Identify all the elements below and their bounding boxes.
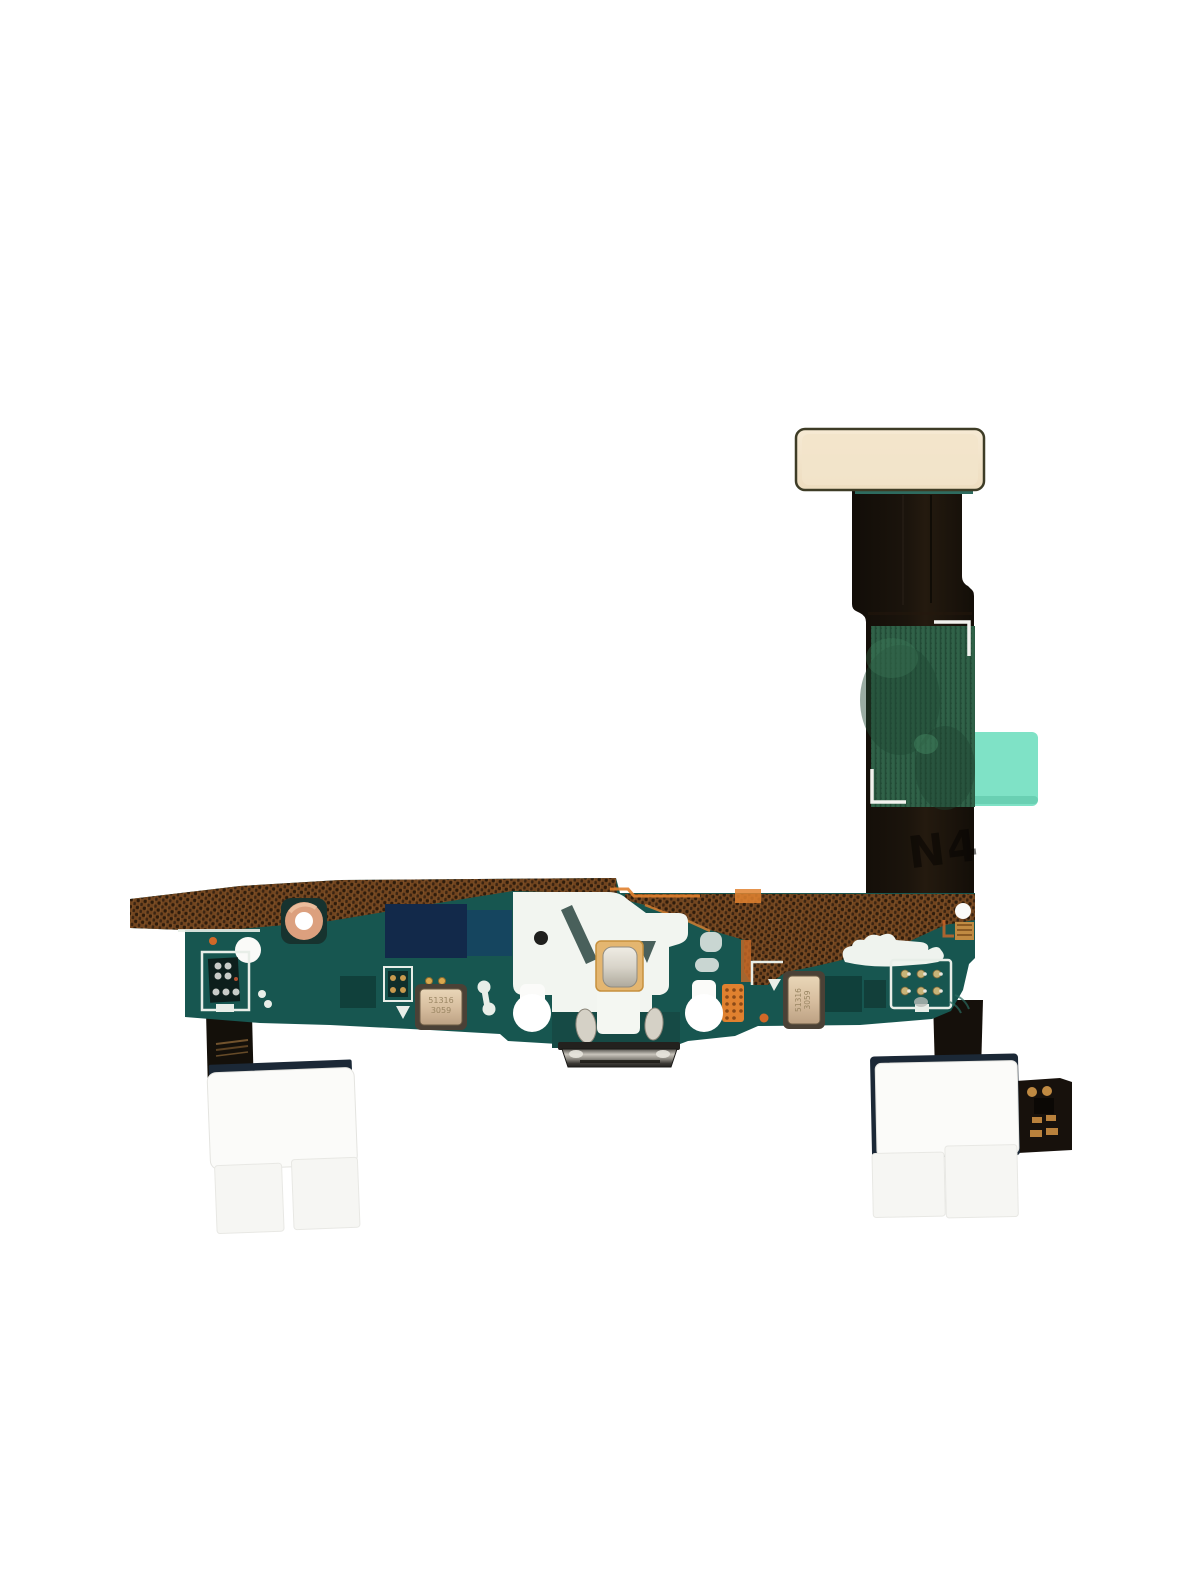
dark-patch <box>820 976 862 1012</box>
blue-patch <box>467 910 512 956</box>
microphone-left: 51316 3059 <box>415 984 467 1030</box>
sticker-left-tab-a <box>215 1163 285 1234</box>
black-dot <box>534 931 548 945</box>
pale-pad <box>695 958 719 972</box>
ribbon-crease <box>902 495 904 605</box>
sticker-right-tab-b <box>945 1145 1018 1218</box>
bottom-left-sticker <box>207 1059 360 1234</box>
orange-via-array <box>722 984 744 1022</box>
mic-left-marking-1: 51316 <box>428 996 453 1005</box>
mic-right-marking-2: 3059 <box>803 990 812 1009</box>
connector-pad-face <box>802 434 978 485</box>
test-box-small-left <box>384 967 412 1001</box>
flex-cable-photo: N4 <box>0 0 1200 1587</box>
sticker-left-tab-b <box>291 1157 360 1229</box>
copper-patch-line <box>957 929 972 931</box>
dark-patch <box>340 976 376 1008</box>
navy-patch <box>385 904 467 958</box>
sticker-mottle <box>914 734 938 754</box>
silkscreen-line-left <box>178 929 260 932</box>
microphone-right: 51316 3059 <box>783 971 825 1029</box>
micro-usb-connector <box>558 1042 680 1067</box>
sticker-right-main <box>875 1060 1019 1156</box>
gold-dot <box>426 978 433 985</box>
dark-patch <box>864 980 886 1008</box>
copper-patch-line <box>957 934 972 936</box>
gold-dot <box>439 978 446 985</box>
main-board: 51316 3059 <box>130 878 983 1094</box>
sticker-right-tab-a <box>872 1152 945 1217</box>
copper-grommet <box>281 898 327 944</box>
bottom-right-group <box>870 1053 1072 1219</box>
ribbon-crease <box>930 495 932 603</box>
home-button-contact <box>596 941 643 991</box>
orange-dot-left <box>209 937 217 945</box>
sticker-mottle <box>866 638 918 678</box>
orange-dot-right <box>760 1014 769 1023</box>
sticker-left-main <box>207 1067 358 1170</box>
adhesive-sticker-green <box>860 622 975 810</box>
copper-patch-line <box>957 924 972 926</box>
ribbon-embossed-text: N4 <box>905 820 982 879</box>
mic-left-marking-2: 3059 <box>431 1006 451 1015</box>
ribbon-fold-line <box>868 612 972 615</box>
test-hole-right <box>955 903 971 919</box>
orange-strip <box>741 940 751 982</box>
red-dot <box>234 977 238 981</box>
mic-right-marking-1: 51316 <box>794 988 803 1012</box>
photo-canvas: N4 <box>0 0 1200 1587</box>
vertical-ribbon-assembly: N4 <box>796 429 1038 906</box>
orange-patch-top <box>735 889 761 903</box>
pale-pad <box>700 932 722 952</box>
